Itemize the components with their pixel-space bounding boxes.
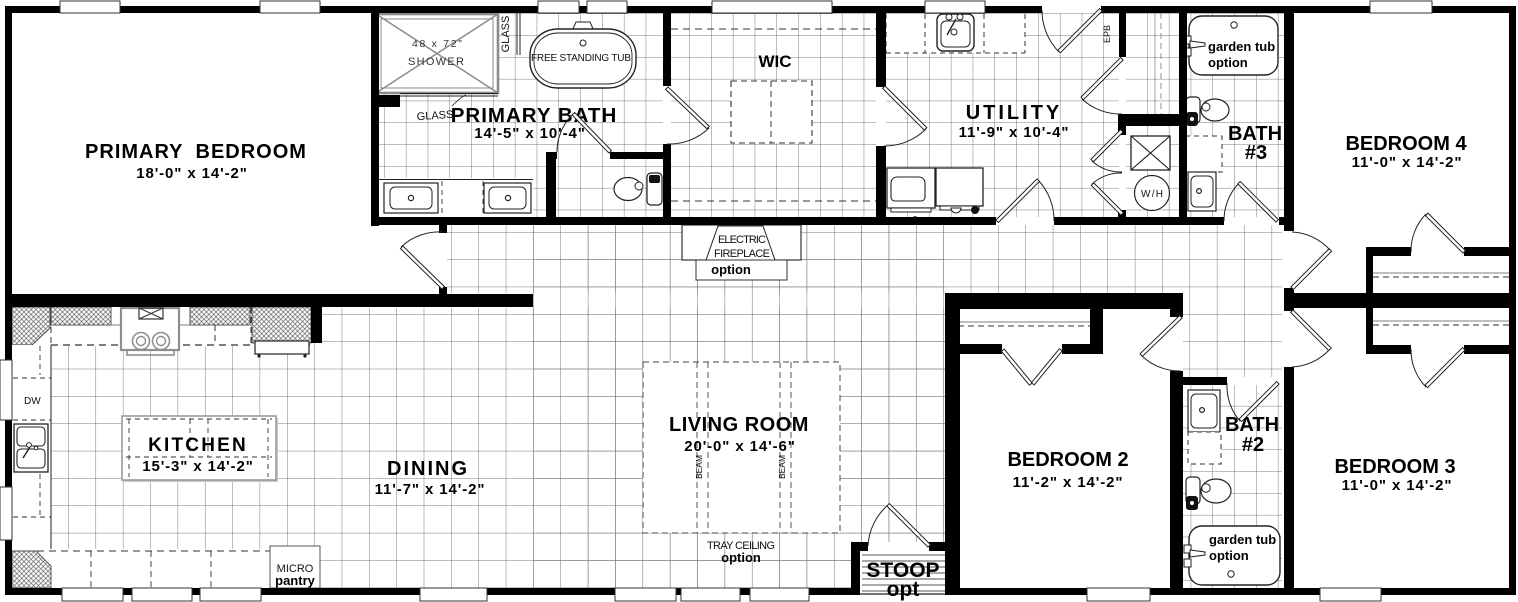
svg-text:BATH: BATH: [1225, 414, 1279, 436]
svg-text:UTILITY: UTILITY: [966, 102, 1063, 124]
svg-text:pantry: pantry: [275, 573, 316, 588]
svg-text:PRIMARYBEDROOM: PRIMARYBEDROOM: [85, 141, 307, 163]
svg-text:GLASS: GLASS: [500, 16, 512, 53]
svg-text:garden tub: garden tub: [1209, 532, 1276, 547]
svg-text:#3: #3: [1245, 142, 1267, 164]
svg-text:FIREPLACE: FIREPLACE: [714, 248, 770, 260]
svg-text:11'-9" x 10'-4": 11'-9" x 10'-4": [959, 124, 1070, 141]
svg-text:11'-0" x 14'-2": 11'-0" x 14'-2": [1342, 477, 1453, 494]
svg-text:11'-2" x 14'-2": 11'-2" x 14'-2": [1013, 474, 1124, 491]
svg-text:BEDROOM 3: BEDROOM 3: [1334, 456, 1455, 478]
svg-text:DW: DW: [24, 396, 41, 407]
svg-text:ELECTRIC: ELECTRIC: [718, 234, 766, 246]
svg-text:option: option: [1208, 55, 1248, 70]
svg-text:11'-7" x 14'-2": 11'-7" x 14'-2": [375, 481, 486, 498]
svg-text:EPB: EPB: [1102, 25, 1112, 43]
svg-text:15'-3" x 14'-2": 15'-3" x 14'-2": [142, 458, 254, 475]
svg-text:KITCHEN: KITCHEN: [148, 435, 248, 456]
svg-text:14'-5" x 10'-4": 14'-5" x 10'-4": [474, 125, 586, 142]
svg-text:SHOWER: SHOWER: [408, 56, 464, 68]
svg-text:#2: #2: [1242, 434, 1264, 456]
svg-text:PRIMARY BATH: PRIMARY BATH: [451, 104, 618, 127]
svg-text:WIC: WIC: [758, 52, 791, 71]
svg-text:FREE STANDING TUB: FREE STANDING TUB: [531, 53, 631, 64]
svg-text:W/H: W/H: [1141, 189, 1163, 200]
svg-text:garden tub: garden tub: [1208, 39, 1275, 54]
svg-text:20'-0" x 14'-6": 20'-0" x 14'-6": [684, 438, 796, 455]
svg-text:LIVING ROOM: LIVING ROOM: [669, 414, 809, 436]
svg-text:BEDROOM 2: BEDROOM 2: [1007, 449, 1128, 471]
svg-text:option: option: [1209, 548, 1249, 563]
svg-text:BEAM: BEAM: [694, 455, 704, 479]
svg-text:option: option: [711, 262, 751, 277]
svg-text:DINING: DINING: [387, 458, 469, 480]
svg-text:11'-0" x 14'-2": 11'-0" x 14'-2": [1352, 154, 1463, 171]
svg-text:option: option: [721, 550, 761, 565]
svg-text:BEAM: BEAM: [777, 455, 787, 479]
svg-text:opt: opt: [887, 578, 920, 601]
svg-text:GLASS: GLASS: [416, 109, 453, 124]
svg-text:18'-0" x 14'-2": 18'-0" x 14'-2": [136, 165, 248, 182]
svg-text:BEDROOM 4: BEDROOM 4: [1345, 133, 1467, 155]
